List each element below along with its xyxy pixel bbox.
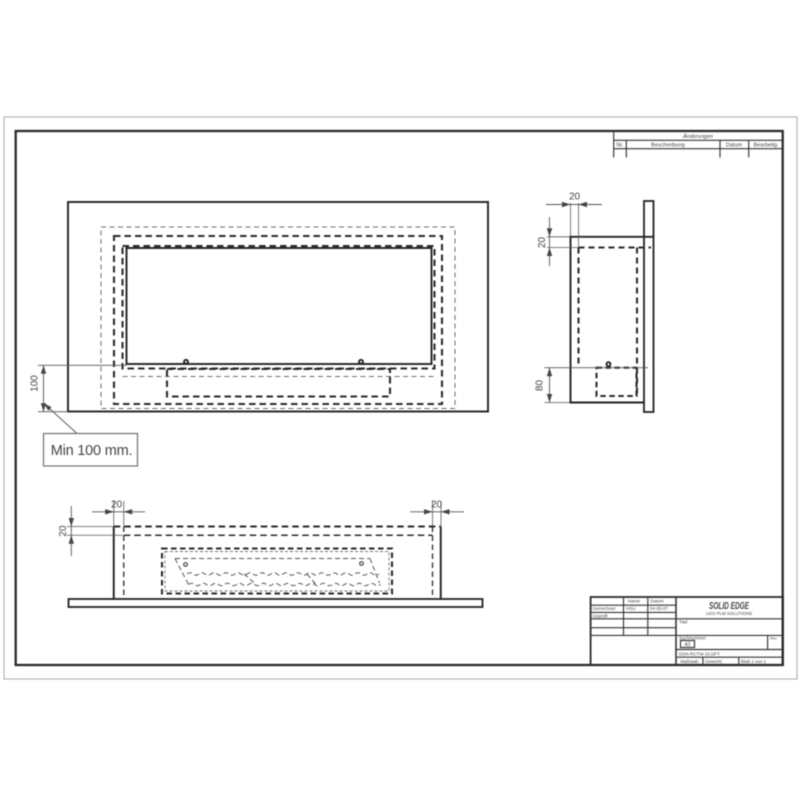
svg-text:DSN-RCTW-10.DFT: DSN-RCTW-10.DFT <box>679 652 720 657</box>
svg-text:Bearbeitg.: Bearbeitg. <box>753 143 779 149</box>
svg-text:Titel: Titel <box>679 620 687 625</box>
svg-text:Maßstab:: Maßstab: <box>681 659 700 664</box>
svg-text:Datum: Datum <box>726 143 743 149</box>
svg-text:Rev: Rev <box>770 637 777 641</box>
svg-text:Name: Name <box>628 599 641 604</box>
svg-text:Min 100 mm.: Min 100 mm. <box>51 443 133 459</box>
svg-text:UGS PLM SOLUTIONS: UGS PLM SOLUTIONS <box>706 611 752 616</box>
svg-text:20: 20 <box>431 500 443 511</box>
svg-text:Nr.: Nr. <box>616 143 624 149</box>
svg-text:04-05-07: 04-05-07 <box>650 606 669 611</box>
svg-text:80: 80 <box>535 380 546 392</box>
svg-text:HSU: HSU <box>626 606 636 611</box>
svg-text:100: 100 <box>29 375 40 392</box>
svg-text:Änderungen: Änderungen <box>682 133 713 140</box>
svg-text:A2: A2 <box>684 642 690 648</box>
svg-text:20: 20 <box>58 525 69 537</box>
svg-text:Beschreibung: Beschreibung <box>651 143 685 149</box>
svg-text:Geprüft: Geprüft <box>593 613 609 618</box>
svg-text:Blatt 1 von 1: Blatt 1 von 1 <box>741 659 767 664</box>
svg-text:Sachnummer:: Sachnummer: <box>679 636 707 641</box>
svg-text:Gewicht:: Gewicht: <box>705 659 723 664</box>
svg-text:20: 20 <box>569 192 581 203</box>
svg-text:Gezeichnet: Gezeichnet <box>593 606 617 611</box>
svg-text:Datum: Datum <box>650 599 664 604</box>
svg-text:20: 20 <box>537 237 548 249</box>
svg-text:20: 20 <box>111 500 123 511</box>
